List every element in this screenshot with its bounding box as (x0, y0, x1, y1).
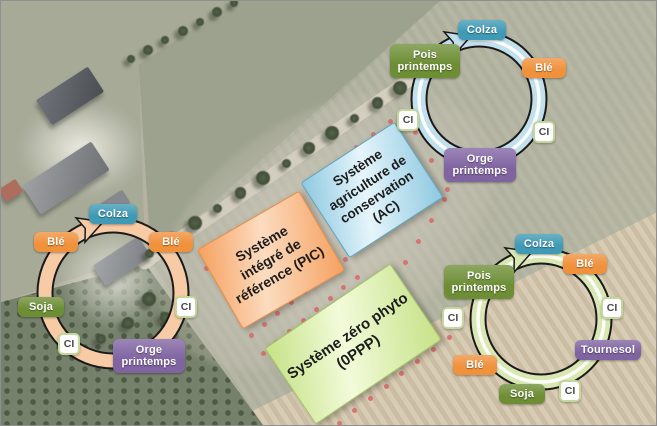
plot-marker-dot (262, 322, 267, 327)
cover-crop-ci-box: CI (175, 296, 197, 318)
crop-box-ble: Blé (453, 355, 497, 375)
crop-box-soja: Soja (18, 297, 64, 317)
cover-crop-ci-box: CI (397, 109, 419, 131)
tree (282, 159, 291, 168)
crop-rotation-diagram: Colza Blé CI Orge printemps CI Soja Blé … (0, 0, 657, 426)
rotation-cycle-oppp: Colza Blé CI Tournesol CI Soja Blé CI Po… (436, 231, 657, 421)
tree (127, 55, 135, 63)
plot-marker-dot (403, 260, 408, 265)
plot-marker-dot (429, 218, 434, 223)
tree (303, 142, 315, 154)
tree (143, 45, 153, 55)
plot-marker-dot (343, 257, 348, 262)
crop-box-ble: Blé (563, 254, 607, 274)
plot-marker-dot (249, 333, 254, 338)
tree (325, 126, 339, 140)
crop-box-ble: Blé (34, 232, 78, 252)
tree (235, 187, 247, 199)
plot-marker-dot (368, 396, 373, 401)
plot-marker-dot (355, 275, 360, 280)
tree (196, 18, 204, 26)
rotation-cycle-ac: Colza Blé CI Orge printemps CI Pois prin… (386, 6, 586, 191)
crop-box-pois-printemps: Pois printemps (444, 265, 514, 299)
crop-box-soja: Soja (499, 384, 545, 404)
cover-crop-ci-box: CI (559, 380, 581, 402)
plot-marker-dot (328, 296, 333, 301)
crop-box-orge-printemps: Orge printemps (444, 148, 516, 182)
cover-crop-ci-box: CI (442, 307, 464, 329)
crop-box-colza: Colza (515, 234, 563, 254)
rotation-cycle-pic: Colza Blé CI Orge printemps CI Soja Blé (1, 196, 231, 396)
crop-box-colza: Colza (458, 20, 506, 40)
plot-marker-dot (337, 421, 342, 426)
crop-box-colza: Colza (89, 204, 137, 224)
crop-box-tournesol: Tournesol (575, 340, 641, 360)
crop-box-pois-printemps: Pois printemps (390, 44, 460, 78)
crop-box-orge-printemps: Orge printemps (113, 339, 185, 373)
tree (372, 97, 384, 109)
plot-marker-dot (261, 351, 266, 356)
tree (350, 114, 359, 123)
crop-box-ble: Blé (149, 232, 193, 252)
tree (178, 26, 188, 36)
plot-marker-dot (384, 384, 389, 389)
cycle-ring-oppp (436, 231, 657, 421)
cover-crop-ci-box: CI (58, 333, 80, 355)
plot-marker-dot (416, 239, 421, 244)
cover-crop-ci-box: CI (533, 121, 555, 143)
crop-box-ble: Blé (522, 58, 566, 78)
cover-crop-ci-box: CI (601, 297, 623, 319)
